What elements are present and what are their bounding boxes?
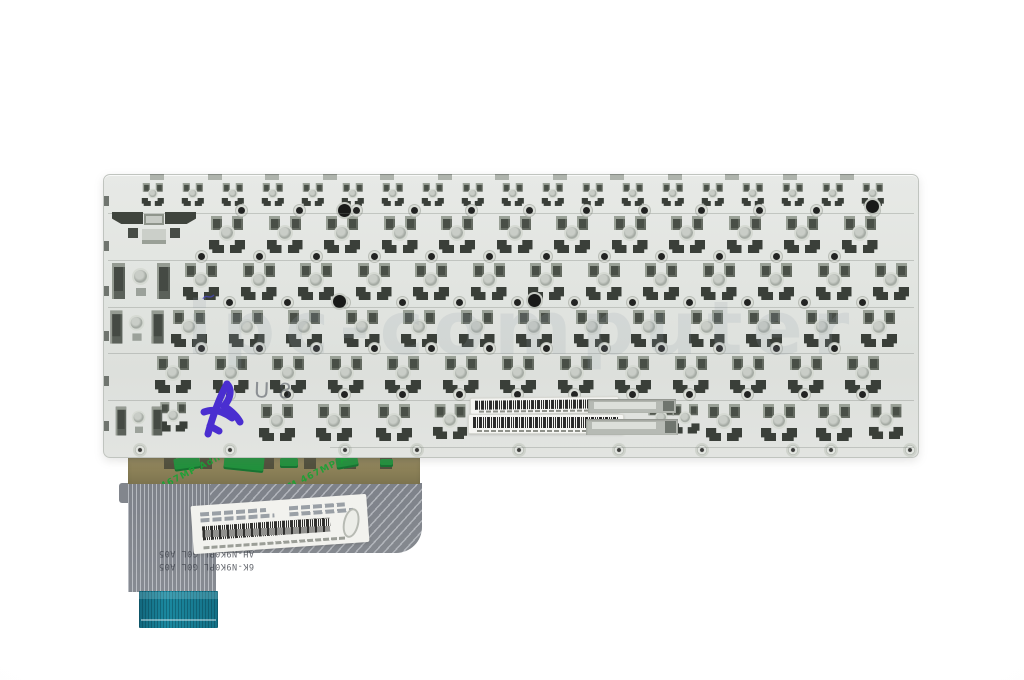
tall-key-mount bbox=[112, 261, 170, 301]
tall-key-mount bbox=[116, 405, 162, 437]
pencil-mark: U8 bbox=[254, 378, 302, 404]
cable-connector-end bbox=[139, 591, 218, 628]
pcb-green-patch bbox=[280, 458, 298, 468]
pcb-green-patch bbox=[380, 459, 393, 467]
tall-key-mount bbox=[110, 309, 163, 346]
stamped-window bbox=[586, 419, 678, 435]
product-photo: ipc-computer U8 3M 467MP Adhesive3M 467M… bbox=[0, 0, 1024, 680]
stamped-window bbox=[588, 399, 676, 413]
ink-scribble-mark bbox=[196, 376, 252, 440]
adhesive-tape-strip: 3M 467MP Adhesive3M 467MP Adhesive bbox=[128, 455, 420, 484]
small-ink-mark bbox=[202, 292, 216, 302]
cable-print-line: 6K-N9K0PL G0L A05 bbox=[132, 559, 254, 572]
wide-key-mount bbox=[112, 212, 196, 250]
